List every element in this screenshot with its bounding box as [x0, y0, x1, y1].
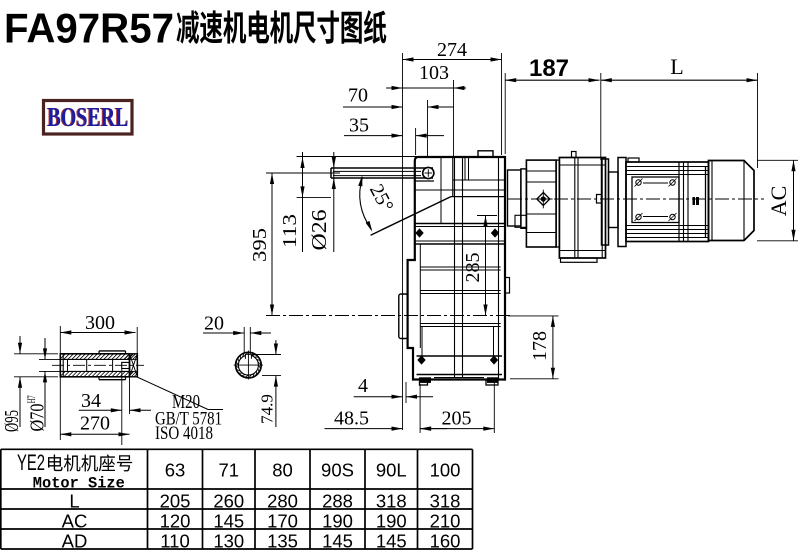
svg-text:170: 170: [267, 510, 298, 531]
svg-text:113: 113: [279, 214, 301, 248]
svg-text:63: 63: [165, 460, 186, 481]
svg-text:FA97R57: FA97R57: [4, 5, 174, 52]
svg-text:280: 280: [267, 490, 298, 511]
svg-text:285: 285: [462, 253, 484, 283]
svg-text:205: 205: [160, 490, 191, 511]
svg-text:260: 260: [213, 490, 244, 511]
svg-text:H7: H7: [24, 395, 38, 403]
svg-text:190: 190: [376, 510, 407, 531]
svg-text:274: 274: [437, 39, 467, 61]
svg-text:34: 34: [81, 390, 101, 412]
svg-text:L: L: [670, 54, 683, 79]
svg-text:270: 270: [80, 413, 110, 435]
svg-text:Ø26: Ø26: [307, 210, 331, 251]
svg-text:190: 190: [322, 510, 353, 531]
svg-text:70: 70: [348, 85, 368, 107]
svg-text:178: 178: [529, 331, 551, 361]
svg-text:Ø95: Ø95: [1, 410, 23, 432]
svg-text:48.5: 48.5: [334, 408, 369, 430]
svg-text:145: 145: [213, 510, 244, 531]
svg-text:145: 145: [322, 530, 353, 551]
svg-text:300: 300: [85, 312, 115, 334]
svg-text:288: 288: [322, 490, 353, 511]
svg-text:110: 110: [160, 530, 190, 551]
svg-text:35: 35: [349, 115, 369, 137]
svg-text:205: 205: [442, 408, 472, 430]
svg-text:100: 100: [430, 460, 461, 481]
svg-text:YE2: YE2: [17, 450, 45, 475]
svg-text:ISO 4018: ISO 4018: [155, 423, 213, 444]
svg-text:BOSERL: BOSERL: [48, 102, 129, 132]
svg-text:135: 135: [267, 530, 298, 551]
svg-text:80: 80: [272, 460, 293, 481]
svg-text:120: 120: [160, 510, 191, 531]
svg-text:318: 318: [376, 490, 407, 511]
svg-text:318: 318: [430, 490, 461, 511]
svg-text:AD: AD: [62, 530, 88, 551]
svg-text:187: 187: [529, 55, 569, 82]
svg-text:20: 20: [204, 313, 224, 335]
svg-text:90S: 90S: [321, 460, 354, 481]
svg-text:AC: AC: [766, 186, 791, 217]
svg-text:160: 160: [430, 530, 461, 551]
svg-text:90L: 90L: [376, 460, 407, 481]
svg-text:AC: AC: [62, 510, 88, 531]
svg-text:145: 145: [376, 530, 407, 551]
svg-text:395: 395: [249, 228, 271, 262]
svg-text:4: 4: [358, 375, 368, 397]
svg-text:71: 71: [219, 460, 240, 481]
svg-text:210: 210: [430, 510, 461, 531]
svg-text:130: 130: [213, 530, 244, 551]
svg-text:Ø70: Ø70: [27, 404, 49, 432]
svg-text:74.9: 74.9: [258, 394, 277, 424]
svg-text:L: L: [69, 490, 79, 511]
svg-text:103: 103: [419, 62, 449, 84]
